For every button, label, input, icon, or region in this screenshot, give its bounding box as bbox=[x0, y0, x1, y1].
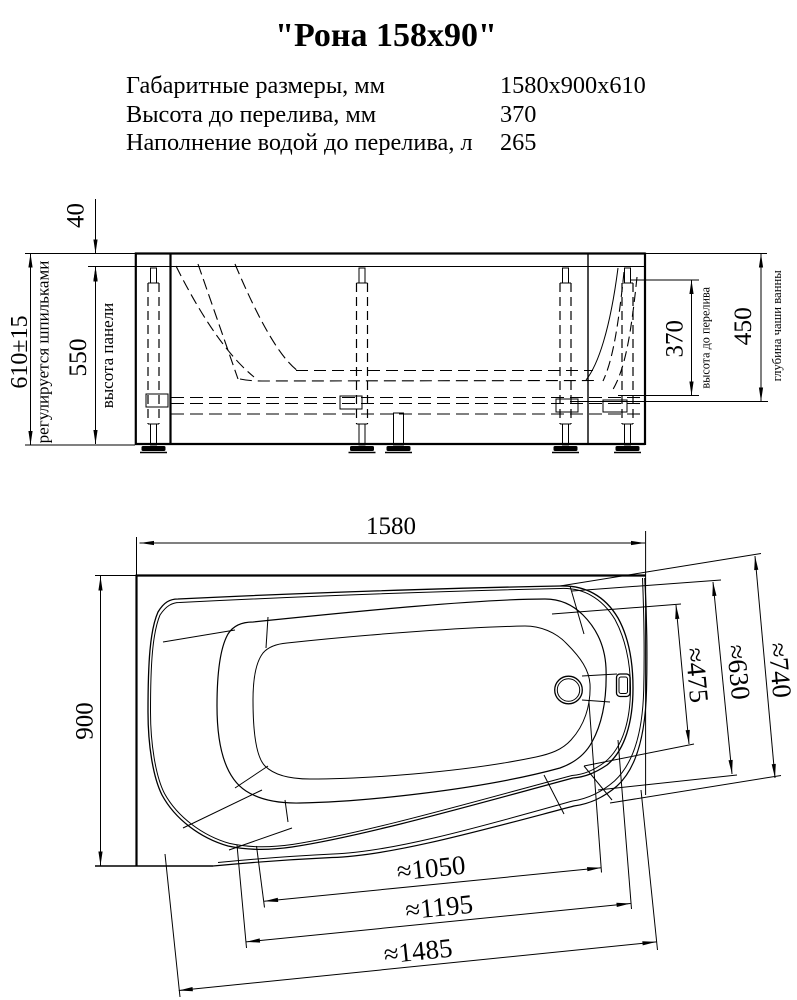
svg-text:610±15: 610±15 bbox=[7, 315, 33, 388]
svg-text:1580х900х610: 1580х900х610 bbox=[500, 72, 646, 99]
svg-text:450: 450 bbox=[728, 307, 757, 345]
svg-text:≈740: ≈740 bbox=[763, 641, 797, 699]
svg-text:≈630: ≈630 bbox=[721, 643, 756, 701]
svg-text:370: 370 bbox=[662, 320, 689, 358]
svg-text:40: 40 bbox=[63, 203, 90, 228]
svg-text:1580: 1580 bbox=[366, 513, 416, 540]
svg-text:высота панели: высота панели bbox=[98, 303, 117, 409]
svg-text:265: 265 bbox=[500, 129, 536, 156]
svg-text:глубина чаши ванны: глубина чаши ванны bbox=[770, 270, 784, 382]
svg-text:высота до перелива: высота до перелива bbox=[699, 286, 713, 388]
svg-text:Высота до перелива, мм: Высота до перелива, мм bbox=[126, 101, 376, 128]
svg-text:550: 550 bbox=[63, 338, 92, 376]
svg-text:900: 900 bbox=[72, 702, 99, 740]
svg-text:370: 370 bbox=[500, 101, 536, 128]
svg-text:Габаритные размеры, мм: Габаритные размеры, мм bbox=[126, 72, 385, 99]
svg-text:≈475: ≈475 bbox=[679, 646, 714, 704]
svg-text:регулируется шпильками: регулируется шпильками bbox=[34, 261, 53, 444]
svg-text:"Рона 158х90": "Рона 158х90" bbox=[275, 17, 497, 54]
svg-text:Наполнение водой до перелива,: Наполнение водой до перелива, л bbox=[126, 129, 473, 156]
